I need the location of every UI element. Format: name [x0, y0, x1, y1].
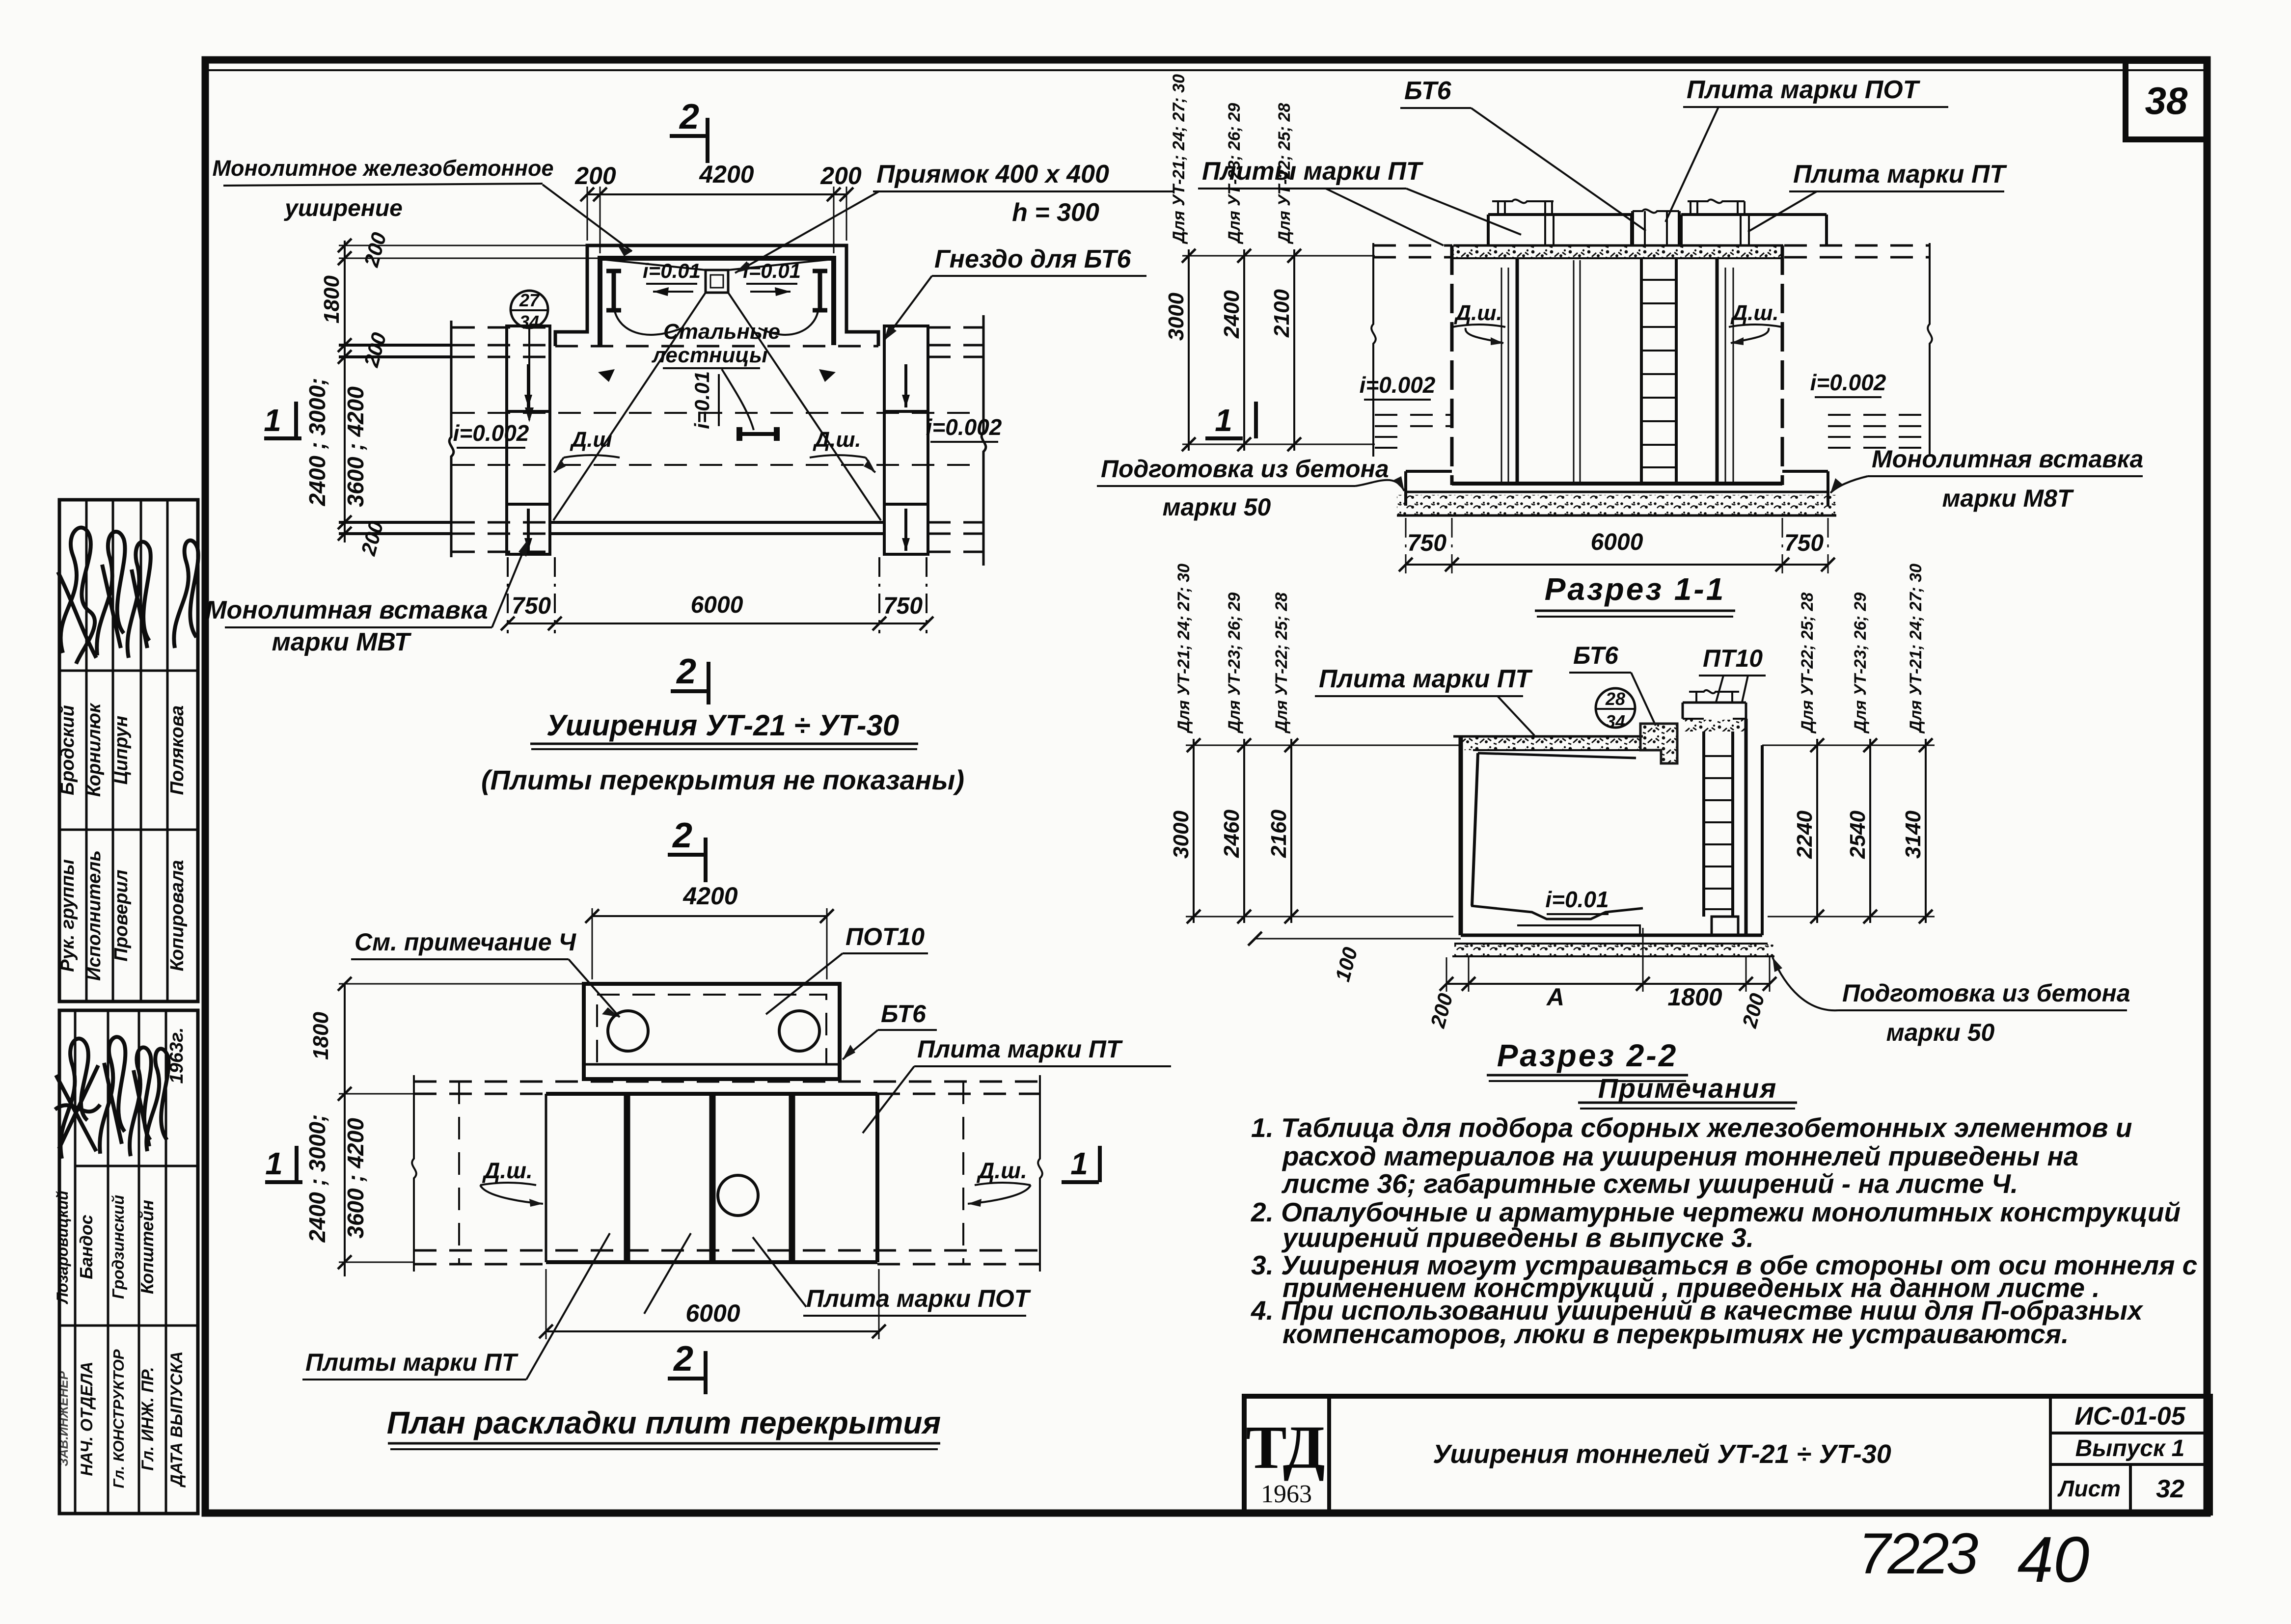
svg-text:200: 200	[820, 162, 862, 189]
svg-text:3000: 3000	[1164, 293, 1188, 341]
svg-text:2540: 2540	[1846, 811, 1870, 859]
svg-text:Для УТ-21; 24; 27; 30: Для УТ-21; 24; 27; 30	[1174, 564, 1193, 734]
svg-text:ТД: ТД	[1246, 1414, 1325, 1482]
svg-text:марки 50: марки 50	[1886, 1019, 1995, 1046]
svg-text:2: 2	[679, 97, 699, 136]
svg-text:ДАТА ВЫПУСКА: ДАТА ВЫПУСКА	[167, 1351, 186, 1488]
svg-text:марки М8Т: марки М8Т	[1942, 485, 2074, 512]
svg-text:1963: 1963	[1261, 1480, 1312, 1508]
svg-text:3600 ; 4200: 3600 ; 4200	[343, 1118, 368, 1239]
svg-text:38: 38	[2145, 79, 2188, 122]
svg-text:Д.ш: Д.ш	[569, 428, 612, 452]
svg-text:Монолитная вставка: Монолитная вставка	[205, 596, 488, 624]
svg-text:1. Таблица для подбора сбор: 1. Таблица для подбора сборных железобет…	[1251, 1112, 2132, 1143]
svg-text:См. примечание Ч: См. примечание Ч	[355, 928, 576, 956]
svg-text:i=0.01: i=0.01	[690, 371, 713, 429]
svg-text:200: 200	[574, 162, 616, 189]
svg-text:2: 2	[673, 1339, 693, 1379]
svg-text:2400 ; 3000;: 2400 ; 3000;	[304, 378, 330, 507]
svg-text:Д.ш.: Д.ш.	[1730, 301, 1778, 325]
svg-text:Полякова: Полякова	[167, 705, 188, 795]
svg-text:Гл. КОНСТРУКТОР: Гл. КОНСТРУКТОР	[110, 1349, 127, 1488]
svg-text:Д.ш.: Д.ш.	[976, 1158, 1027, 1183]
svg-text:Разрез 2-2: Разрез 2-2	[1497, 1038, 1678, 1073]
svg-text:1: 1	[264, 403, 281, 438]
svg-text:750: 750	[883, 593, 923, 619]
svg-text:Д.ш.: Д.ш.	[482, 1158, 533, 1183]
svg-text:Выпуск 1: Выпуск 1	[2075, 1435, 2185, 1462]
svg-text:1: 1	[1215, 403, 1232, 438]
svg-text:ПОТ10: ПОТ10	[845, 923, 925, 950]
svg-text:28: 28	[1605, 689, 1625, 709]
svg-text:Для УТ-23; 26; 29: Для УТ-23; 26; 29	[1851, 593, 1870, 734]
svg-text:40: 40	[2018, 1523, 2090, 1596]
svg-text:i=0.002: i=0.002	[926, 414, 1002, 440]
svg-text:Для УТ-22; 25; 28: Для УТ-22; 25; 28	[1275, 103, 1294, 244]
svg-text:Монолитное железобетонное: Монолитное железобетонное	[213, 156, 554, 181]
svg-text:3140: 3140	[1901, 811, 1925, 859]
svg-text:Копировала: Копировала	[167, 860, 188, 972]
svg-text:2240: 2240	[1793, 811, 1817, 859]
svg-text:Уширения УТ-21 ÷ УТ-30: Уширения УТ-21 ÷ УТ-30	[546, 709, 899, 742]
svg-text:Д.ш.: Д.ш.	[1453, 301, 1502, 325]
svg-text:Приямок 400 х 400: Приямок 400 х 400	[876, 160, 1109, 189]
svg-text:БТ6: БТ6	[1404, 77, 1452, 105]
svg-text:А: А	[1546, 983, 1564, 1011]
svg-text:уширений приведены в выпуск: уширений приведены в выпуске 3.	[1281, 1222, 1754, 1253]
svg-text:6000: 6000	[1591, 529, 1643, 555]
svg-text:расход материалов на уширен: расход материалов на уширения тоннелей п…	[1282, 1141, 2078, 1171]
svg-text:Копштейн: Копштейн	[137, 1200, 157, 1294]
svg-text:i=0.01: i=0.01	[643, 259, 701, 282]
svg-text:Для УТ-23; 26; 29: Для УТ-23; 26; 29	[1225, 103, 1244, 244]
svg-text:ЗАВ.ИНЖЕНЕР: ЗАВ.ИНЖЕНЕР	[56, 1371, 71, 1466]
svg-text:3000: 3000	[1169, 811, 1193, 859]
svg-text:2460: 2460	[1220, 810, 1244, 858]
svg-text:Уширения тоннелей УТ-21 ÷ УТ: Уширения тоннелей УТ-21 ÷ УТ-30	[1433, 1439, 1891, 1469]
svg-text:Плита марки ПТ: Плита марки ПТ	[1793, 160, 2007, 189]
svg-text:Подготовка из бетона: Подготовка из бетона	[1842, 979, 2130, 1007]
svg-text:НАЧ. ОТДЕЛА: НАЧ. ОТДЕЛА	[78, 1361, 96, 1476]
svg-text:6000: 6000	[691, 592, 743, 618]
svg-text:h = 300: h = 300	[1012, 198, 1099, 227]
svg-text:2: 2	[676, 652, 696, 691]
svg-text:листе 36; габаритные схемы: листе 36; габаритные схемы уширений - на…	[1281, 1168, 2018, 1199]
svg-text:2400 ; 3000;: 2400 ; 3000;	[304, 1114, 330, 1243]
svg-text:Плита марки ПОТ: Плита марки ПОТ	[1687, 76, 1921, 104]
svg-text:БТ6: БТ6	[881, 1000, 927, 1028]
svg-text:Лист: Лист	[2057, 1476, 2121, 1501]
svg-text:6000: 6000	[685, 1299, 740, 1327]
svg-text:i=0.002: i=0.002	[1810, 370, 1886, 395]
svg-text:Стальные: Стальные	[663, 320, 780, 344]
svg-text:32: 32	[2156, 1475, 2184, 1503]
svg-text:1800: 1800	[320, 275, 344, 324]
svg-text:Для УТ-23; 26; 29: Для УТ-23; 26; 29	[1225, 593, 1244, 734]
svg-text:4200: 4200	[682, 882, 737, 910]
svg-text:2: 2	[672, 816, 692, 855]
svg-text:2100: 2100	[1270, 289, 1294, 338]
svg-text:2160: 2160	[1267, 810, 1291, 858]
svg-text:Гнездо для БТ6: Гнездо для БТ6	[934, 245, 1131, 273]
svg-text:3600 ; 4200: 3600 ; 4200	[343, 386, 368, 507]
svg-text:уширение: уширение	[284, 195, 403, 221]
svg-text:i=0.01: i=0.01	[1545, 887, 1609, 912]
svg-text:Для УТ-21; 24; 27; 30: Для УТ-21; 24; 27; 30	[1907, 564, 1925, 734]
svg-text:Для УТ-22; 25; 28: Для УТ-22; 25; 28	[1272, 593, 1291, 734]
svg-text:750: 750	[512, 593, 551, 619]
svg-text:4200: 4200	[699, 161, 754, 188]
svg-text:(Плиты перекрытия не показа: (Плиты перекрытия не показаны)	[481, 764, 964, 795]
svg-text:Для УТ-21; 24; 27; 30: Для УТ-21; 24; 27; 30	[1170, 74, 1188, 244]
svg-text:Лозаровицкий: Лозаровицкий	[54, 1191, 71, 1304]
svg-text:1: 1	[265, 1146, 283, 1181]
svg-text:Разрез 1-1: Разрез 1-1	[1545, 571, 1726, 607]
svg-text:34: 34	[1606, 711, 1625, 731]
svg-text:Д.ш.: Д.ш.	[812, 428, 861, 452]
svg-text:1800: 1800	[309, 1012, 333, 1060]
svg-text:Для УТ-22; 25; 28: Для УТ-22; 25; 28	[1798, 593, 1817, 734]
svg-text:Бродский: Бродский	[57, 705, 78, 795]
svg-text:Проверил: Проверил	[111, 870, 132, 962]
svg-text:марки МВТ: марки МВТ	[272, 628, 411, 656]
svg-text:Бандос: Бандос	[76, 1215, 96, 1279]
svg-text:750: 750	[1407, 530, 1446, 556]
svg-text:Гродзинский: Гродзинский	[109, 1195, 127, 1299]
svg-text:750: 750	[1784, 530, 1824, 556]
svg-text:1800: 1800	[1667, 983, 1722, 1011]
svg-text:Плита марки ПТ: Плита марки ПТ	[1319, 665, 1533, 693]
svg-text:i=0.002: i=0.002	[453, 420, 529, 446]
svg-text:Исполнитель: Исполнитель	[84, 850, 105, 981]
svg-text:БТ6: БТ6	[1573, 642, 1619, 669]
svg-text:Корнилюк: Корнилюк	[84, 703, 105, 797]
svg-text:Рук. группы: Рук. группы	[57, 859, 78, 972]
svg-text:ИС-01-05: ИС-01-05	[2074, 1402, 2185, 1431]
svg-text:2400: 2400	[1220, 290, 1244, 339]
svg-text:7223: 7223	[1858, 1521, 1978, 1586]
svg-text:i=0.002: i=0.002	[1360, 372, 1436, 398]
svg-text:1: 1	[1070, 1146, 1088, 1181]
svg-text:Монолитная вставка: Монолитная вставка	[1872, 445, 2143, 473]
svg-text:Примечания: Примечания	[1598, 1073, 1777, 1104]
svg-text:Плита марки ПОТ: Плита марки ПОТ	[806, 1285, 1032, 1312]
svg-text:Ципрун: Ципрун	[111, 716, 132, 785]
svg-text:ПТ10: ПТ10	[1703, 645, 1763, 672]
svg-text:27: 27	[519, 290, 540, 310]
svg-text:компенсаторов, люки в перекры: компенсаторов, люки в перекрытиях не уст…	[1282, 1319, 2069, 1349]
svg-text:Плиты марки ПТ: Плиты марки ПТ	[305, 1349, 519, 1376]
svg-text:План раскладки плит перекры: План раскладки плит перекрытия	[387, 1405, 941, 1440]
svg-text:Гл. ИНЖ. ПР.: Гл. ИНЖ. ПР.	[138, 1367, 157, 1470]
svg-text:марки 50: марки 50	[1163, 493, 1271, 521]
svg-text:Подготовка из бетона: Подготовка из бетона	[1101, 455, 1389, 483]
svg-text:Плита марки ПТ: Плита марки ПТ	[917, 1035, 1123, 1063]
